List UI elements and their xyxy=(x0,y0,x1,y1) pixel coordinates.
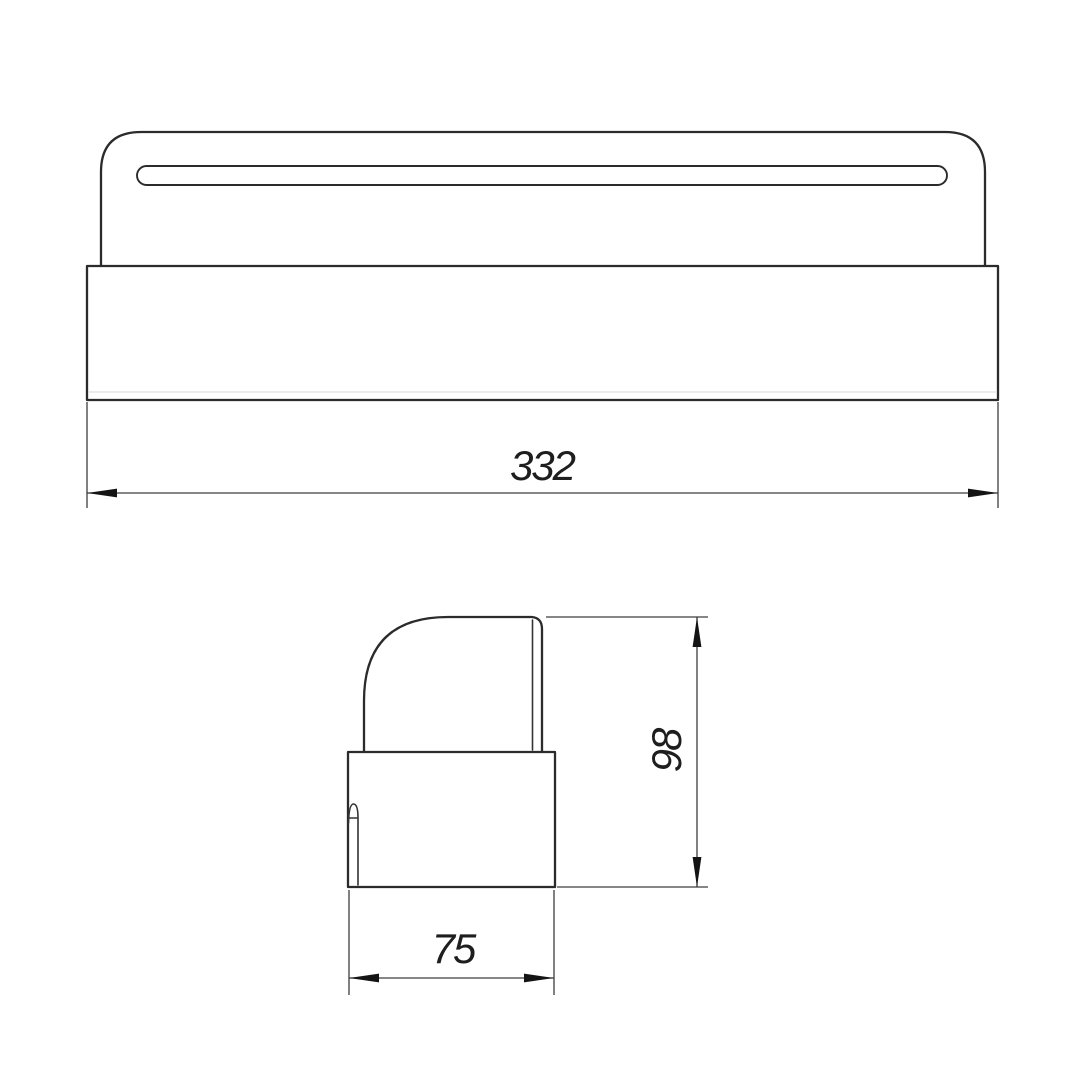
front-width-dim-value: 332 xyxy=(510,442,576,489)
drawing-sheet: 332 98 xyxy=(0,0,1080,1080)
side-cap-outline xyxy=(364,617,542,753)
side-base-outline xyxy=(348,752,555,887)
front-view: 332 xyxy=(87,132,998,508)
arrow-left-icon xyxy=(87,489,117,498)
front-slot-outline xyxy=(137,166,947,185)
arrow-down-icon xyxy=(693,857,702,887)
arrow-right-icon xyxy=(524,974,554,983)
side-height-dim-value: 98 xyxy=(643,727,690,772)
front-upper-body-outline xyxy=(101,132,985,267)
arrow-up-icon xyxy=(693,617,702,647)
side-view: 98 75 xyxy=(348,617,708,995)
technical-drawing-canvas: 332 98 xyxy=(0,0,1080,1080)
front-lower-body-outline xyxy=(87,266,998,400)
side-depth-dim-value: 75 xyxy=(432,925,477,972)
arrow-right-icon xyxy=(968,489,998,498)
arrow-left-icon xyxy=(349,974,379,983)
